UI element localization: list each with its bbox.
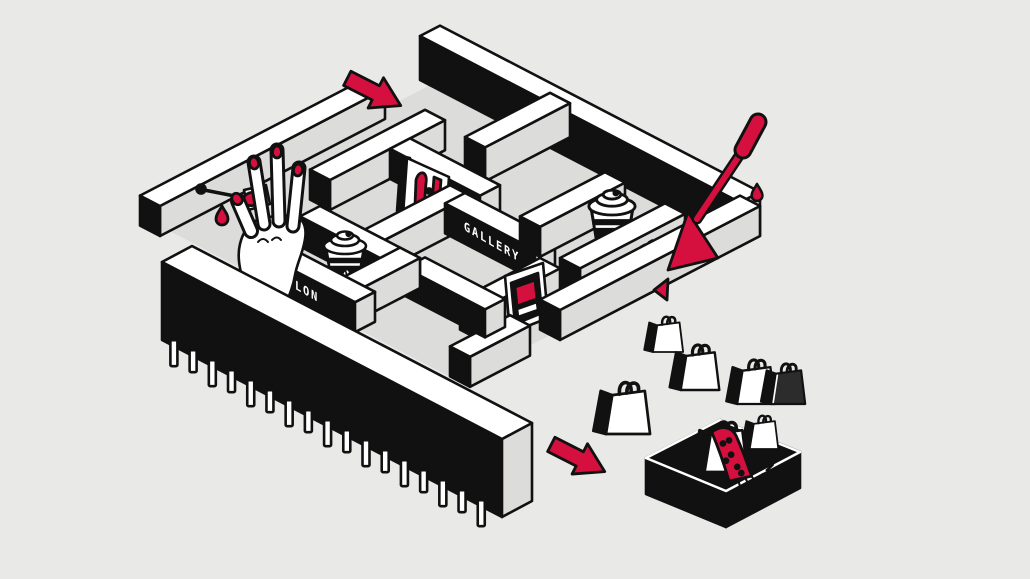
leopard-spot (739, 471, 743, 475)
cup-lid-dot (614, 191, 618, 195)
leopard-spot (721, 441, 725, 445)
comb-tooth (363, 440, 370, 466)
comb-tooth (420, 470, 427, 492)
finger (277, 150, 279, 221)
comb-tooth (439, 480, 446, 506)
leopard-spot (724, 459, 728, 463)
comb-tooth (305, 410, 312, 432)
comb-tooth (478, 500, 485, 526)
leopard-spot (729, 453, 733, 457)
red-nail (273, 146, 282, 158)
comb-tooth (382, 450, 389, 472)
bag-front (681, 352, 720, 390)
cup-lid-dot (347, 232, 351, 236)
bag-front (653, 322, 683, 352)
bag-front (750, 421, 779, 449)
comb-tooth (228, 370, 235, 392)
comb-tooth (266, 390, 273, 412)
bag-front (606, 391, 650, 434)
comb-tooth (286, 400, 293, 426)
leopard-spot (727, 438, 731, 442)
comb-tooth (247, 380, 254, 406)
comb-tooth (190, 350, 197, 372)
comb-tooth (324, 420, 331, 446)
comb-tooth (170, 340, 177, 366)
comb-tooth (209, 360, 216, 386)
red-nail (249, 156, 260, 169)
cup-band (328, 262, 361, 267)
comb-tooth (401, 460, 408, 486)
comb-tooth (459, 490, 466, 512)
painting-dot (426, 188, 431, 193)
comb-tooth (343, 430, 350, 452)
maze-illustration-canvas: GALLERY COFFEE SALON (0, 0, 1030, 579)
red-nail (293, 163, 304, 176)
maze-illustration: GALLERY COFFEE SALON (0, 0, 1030, 579)
leopard-spot (735, 465, 739, 469)
